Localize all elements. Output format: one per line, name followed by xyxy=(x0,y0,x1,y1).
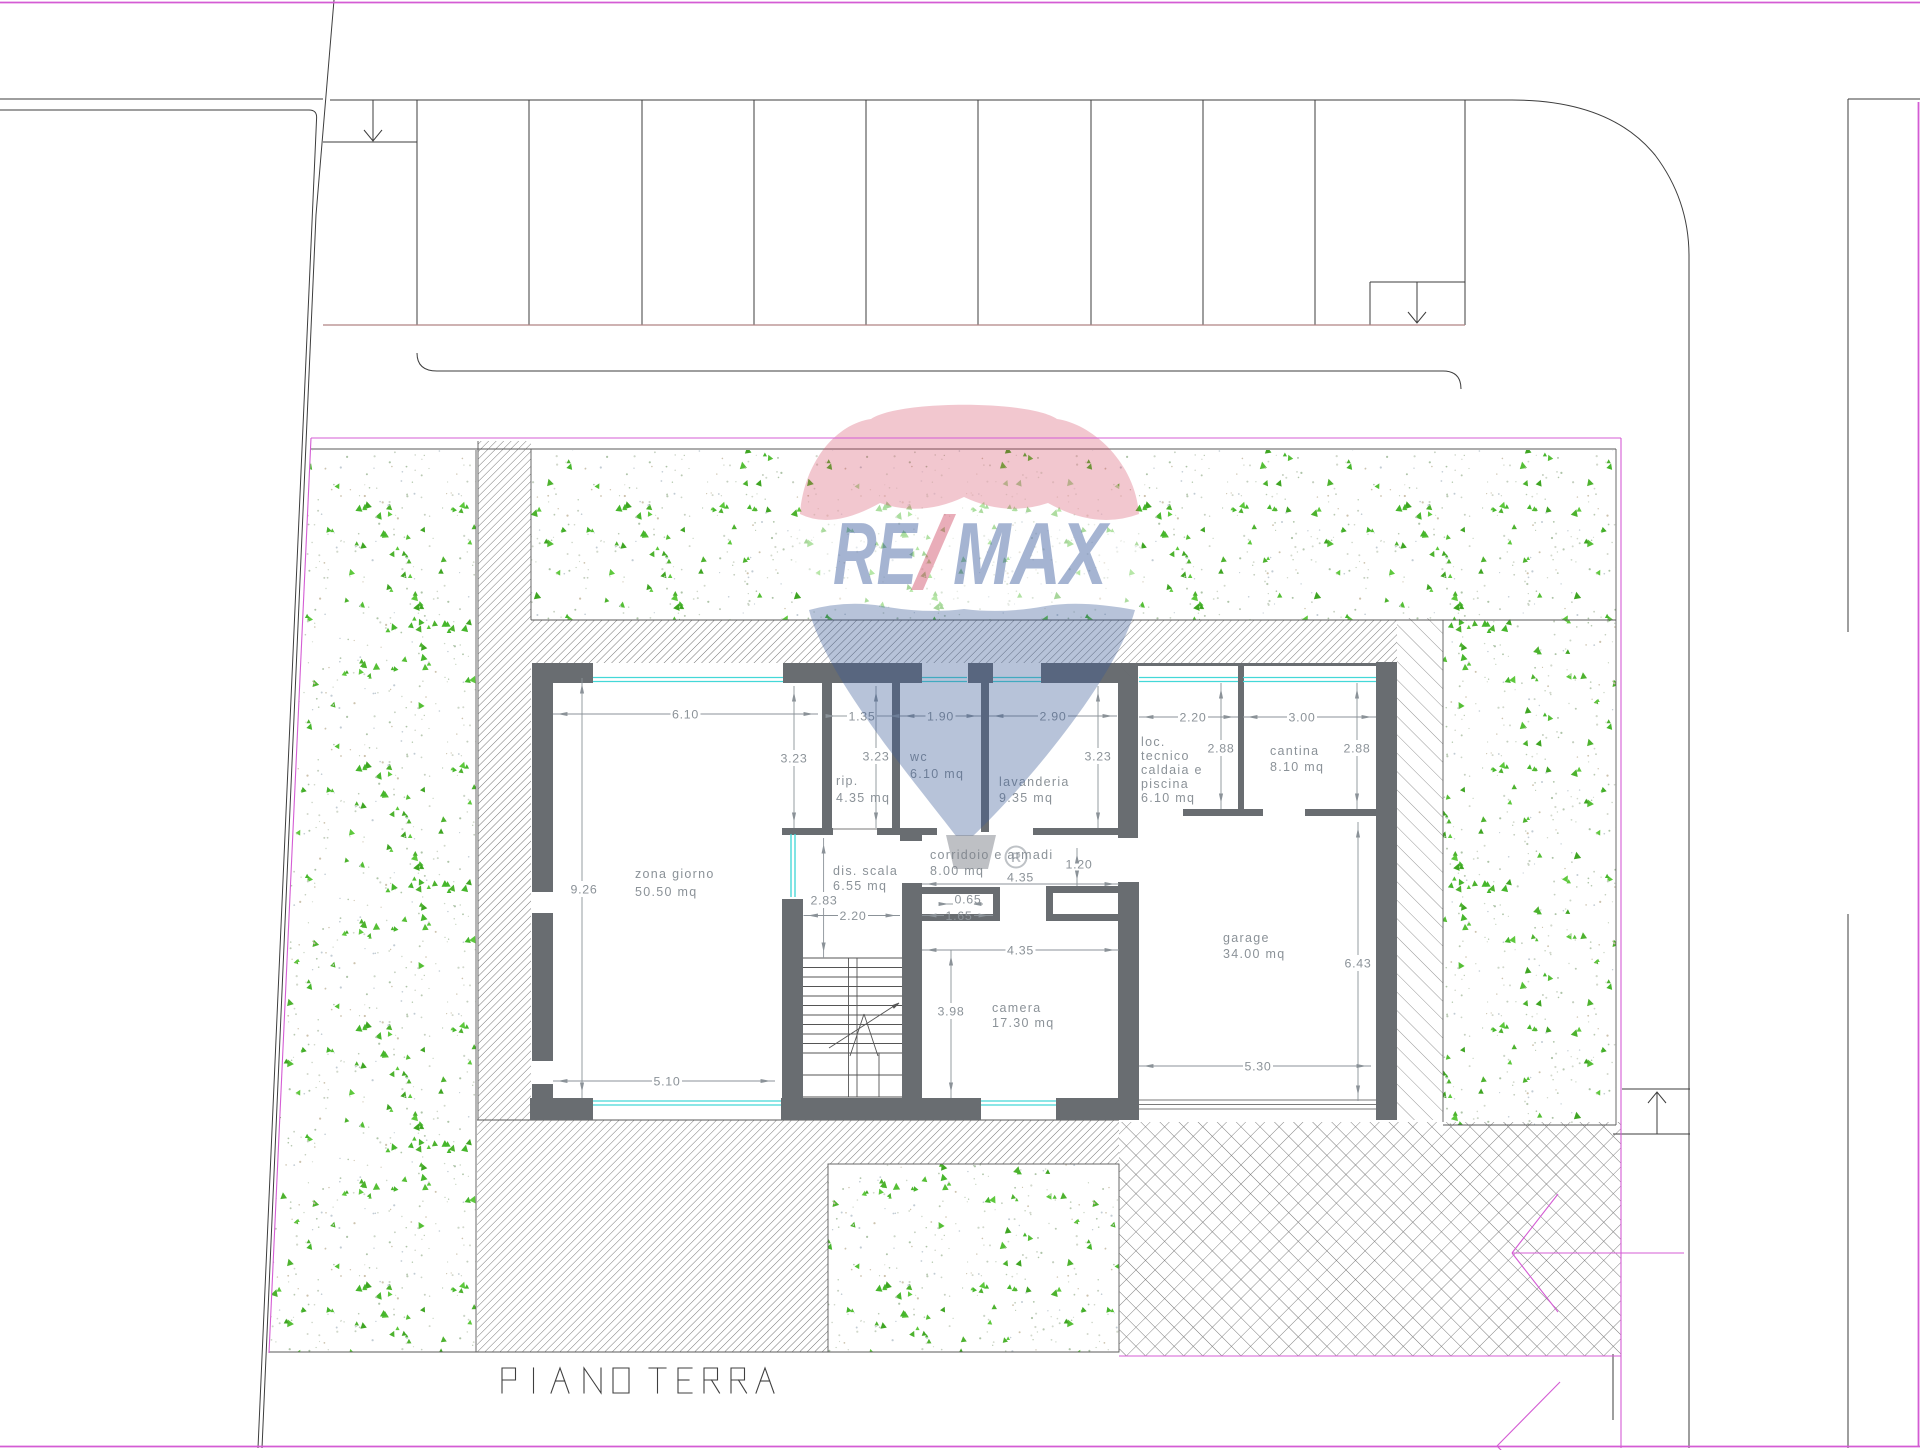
svg-text:3.23: 3.23 xyxy=(781,752,808,766)
svg-text:6.10 mq: 6.10 mq xyxy=(1141,791,1195,805)
svg-text:R: R xyxy=(1011,849,1021,865)
svg-text:RE: RE xyxy=(833,504,919,603)
svg-text:2.20: 2.20 xyxy=(840,909,867,923)
svg-text:3.23: 3.23 xyxy=(863,750,890,764)
svg-text:camera: camera xyxy=(992,1001,1041,1015)
svg-text:4.35 mq: 4.35 mq xyxy=(836,791,890,805)
svg-text:zona giorno: zona giorno xyxy=(635,867,715,881)
svg-text:5.10: 5.10 xyxy=(654,1075,681,1089)
svg-text:garage: garage xyxy=(1223,931,1270,945)
svg-text:1.20: 1.20 xyxy=(1066,858,1093,872)
svg-text:3.00: 3.00 xyxy=(1289,711,1316,725)
svg-text:3.98: 3.98 xyxy=(938,1005,965,1019)
svg-text:6.43: 6.43 xyxy=(1345,957,1372,971)
svg-text:2.88: 2.88 xyxy=(1208,742,1235,756)
svg-text:50.50 mq: 50.50 mq xyxy=(635,885,698,899)
svg-text:8.10 mq: 8.10 mq xyxy=(1270,760,1324,774)
svg-text:6.55 mq: 6.55 mq xyxy=(833,879,887,893)
svg-text:9.26: 9.26 xyxy=(571,883,598,897)
svg-text:3.23: 3.23 xyxy=(1085,750,1112,764)
svg-text:5.30: 5.30 xyxy=(1245,1060,1272,1074)
svg-text:cantina: cantina xyxy=(1270,744,1319,758)
svg-text:4.35: 4.35 xyxy=(1007,944,1034,958)
svg-text:piscina: piscina xyxy=(1141,777,1189,791)
svg-text:2.88: 2.88 xyxy=(1344,742,1371,756)
svg-text:1.65: 1.65 xyxy=(946,909,973,923)
svg-text:tecnico: tecnico xyxy=(1141,749,1190,763)
svg-text:0.65: 0.65 xyxy=(955,893,982,907)
svg-text:4.35: 4.35 xyxy=(1007,871,1034,885)
svg-text:17.30 mq: 17.30 mq xyxy=(992,1016,1055,1030)
svg-text:34.00 mq: 34.00 mq xyxy=(1223,947,1286,961)
svg-text:loc.: loc. xyxy=(1141,735,1166,749)
svg-text:6.10: 6.10 xyxy=(672,708,699,722)
svg-text:caldaia e: caldaia e xyxy=(1141,763,1203,777)
svg-text:rip.: rip. xyxy=(836,774,859,788)
svg-text:MAX: MAX xyxy=(953,504,1111,603)
svg-text:dis. scala: dis. scala xyxy=(833,864,898,878)
svg-text:2.20: 2.20 xyxy=(1180,711,1207,725)
svg-text:2.83: 2.83 xyxy=(811,894,838,908)
